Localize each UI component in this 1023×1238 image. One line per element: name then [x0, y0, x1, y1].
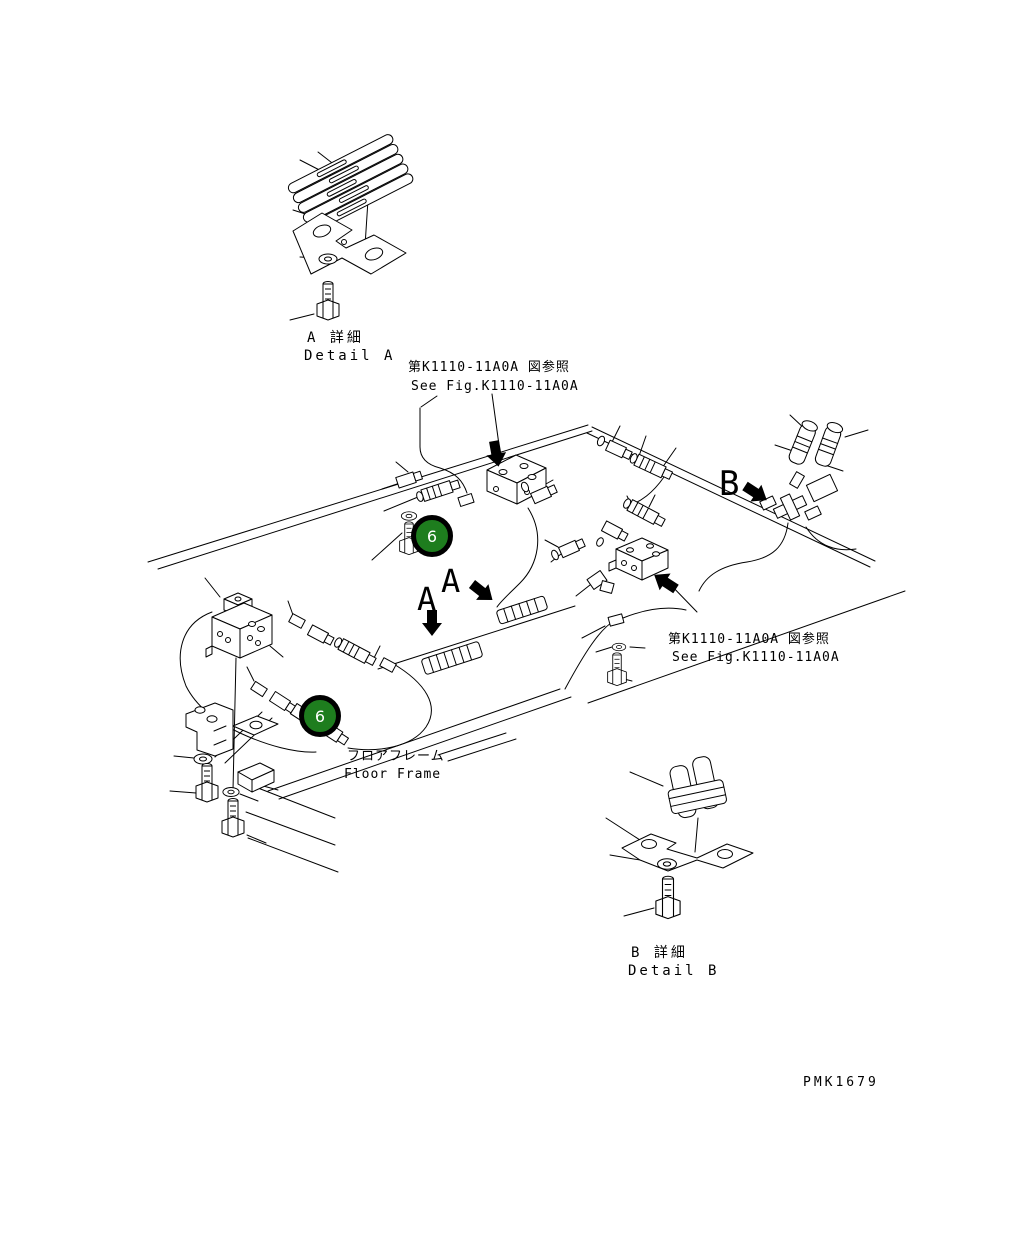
callout-6-badge-upper[interactable]: 6	[414, 518, 451, 555]
ref-note-right-jp: 第K1110-11A0A 図参照	[668, 631, 830, 647]
ref-note-top-jp: 第K1110-11A0A 図参照	[408, 359, 570, 375]
b-fitting-cluster	[760, 419, 844, 520]
detail-a-tube-clamp	[287, 133, 415, 234]
serrated-clamp-right	[496, 596, 548, 625]
bottom-left-bracket	[186, 703, 278, 837]
section-a-marker-right: A	[441, 562, 460, 600]
hose-end-1	[787, 419, 819, 466]
manifold-block-2	[550, 497, 668, 594]
detail-a-bolt	[317, 282, 339, 321]
left-valve-block	[206, 593, 272, 658]
parts-diagram-page: 6 6 A 詳細 Detail A 第K1110-11A0A 図参照 See F…	[0, 0, 1023, 1238]
callout-number: 6	[427, 527, 437, 546]
detail-b-title-jp: B 詳細	[631, 945, 688, 961]
drawing-code: PMK1679	[803, 1075, 879, 1090]
detail-a-washer	[319, 254, 337, 264]
detail-a-title-en: Detail A	[304, 348, 395, 364]
callout-number: 6	[315, 707, 325, 726]
upper-fitting-chain	[596, 435, 673, 481]
hose-end-2	[814, 421, 844, 468]
detail-b-assembly	[622, 754, 753, 919]
floor-frame-label-jp: フロアフレーム	[347, 749, 445, 764]
detail-a-title-jp: A 詳細	[307, 330, 364, 346]
section-a-arrow-diagonal-icon	[466, 576, 499, 608]
diagram-canvas: 6 6 A 詳細 Detail A 第K1110-11A0A 図参照 See F…	[0, 0, 1023, 1238]
detail-a-assembly	[287, 133, 415, 320]
floor-frame-label-en: Floor Frame	[344, 767, 441, 782]
ref-note-right-en: See Fig.K1110-11A0A	[672, 650, 840, 665]
detail-b-bracket	[622, 834, 753, 871]
detail-a-bracket	[293, 213, 406, 274]
ref-note-top-en: See Fig.K1110-11A0A	[411, 379, 579, 394]
section-b-marker: B	[719, 464, 739, 504]
mid-bottom-cluster	[608, 614, 627, 686]
callout-6-badge-lower[interactable]: 6	[302, 698, 339, 735]
serrated-clamp-left	[421, 641, 483, 675]
detail-b-title-en: Detail B	[628, 963, 719, 979]
leader-lines	[170, 152, 868, 916]
cross-fitting	[773, 494, 806, 520]
detail-b-tube-clamp	[662, 754, 728, 820]
section-a-marker-left: A	[417, 580, 436, 618]
